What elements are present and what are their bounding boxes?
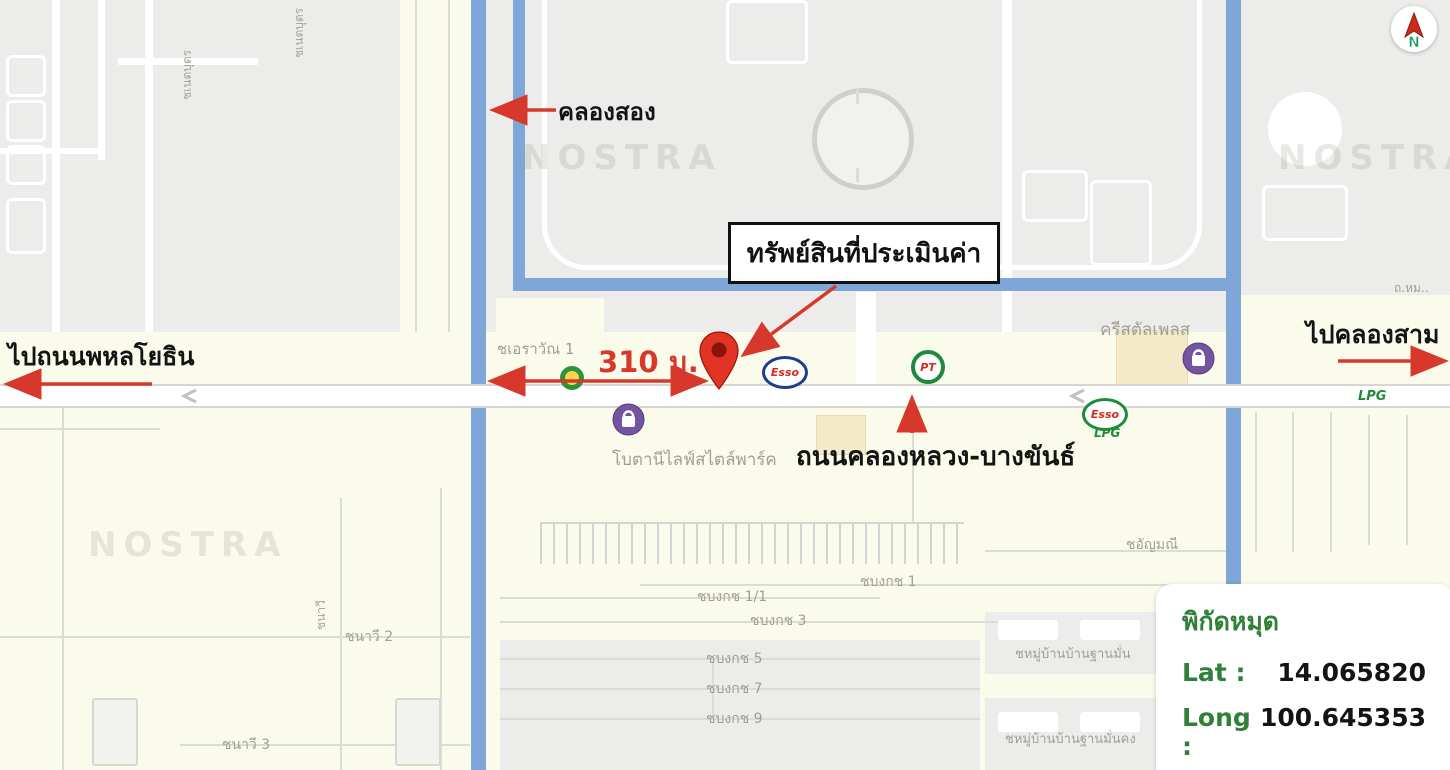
map-canvas: NOSTRA NOSTRA NOSTRA Esso PT Esso LPG ชเ…	[0, 0, 1450, 770]
street-line	[500, 597, 880, 599]
street-label: ชบงกช 1/1	[697, 586, 767, 608]
watermark: NOSTRA	[522, 138, 722, 178]
street-line	[98, 0, 105, 160]
roundabout	[812, 88, 914, 190]
lat-value: 14.065820	[1277, 658, 1426, 687]
building	[395, 698, 441, 766]
street-label-vertical: ชเนตบุตร	[178, 50, 197, 100]
compass-icon: N	[1391, 6, 1437, 52]
street-line	[856, 292, 876, 386]
street-line	[62, 405, 64, 770]
main-road-label: ถนนคลองหลวง-บางขันธ์	[796, 436, 1075, 477]
building	[92, 698, 138, 766]
townhouse-row	[540, 522, 964, 564]
street-label: ชอัญมณี	[1126, 534, 1178, 556]
street-line	[415, 0, 417, 332]
property-callout-box: ทรัพย์สินที่ประเมินค่า	[728, 222, 1000, 284]
coordinates-card: พิกัดหมุด Lat : 14.065820 Long : 100.645…	[1156, 584, 1450, 770]
street-label: ชบงกช 7	[706, 678, 763, 700]
street-label: ชบงกช 1	[860, 571, 917, 593]
building-outline	[6, 55, 46, 97]
building-outline	[726, 0, 808, 64]
distance-label: 310 ม.	[598, 339, 699, 385]
shopping-bag-icon	[1182, 342, 1215, 375]
street-label: ถ.หม..	[1394, 279, 1429, 298]
street-label: ชนาวี 2	[345, 626, 393, 648]
street-line	[448, 0, 450, 332]
longitude-row: Long : 100.645353	[1182, 703, 1426, 761]
building-outline	[1090, 180, 1152, 266]
street-line	[0, 636, 470, 638]
compass-north-letter: N	[1408, 35, 1420, 51]
street-line	[1255, 412, 1257, 552]
lpg-label: LPG	[1094, 426, 1120, 440]
street-label: ชเอราวัณ 1	[497, 337, 574, 361]
street-line	[145, 0, 153, 332]
coordinates-title: พิกัดหมุด	[1182, 602, 1426, 642]
property-callout-text: ทรัพย์สินที่ประเมินค่า	[747, 233, 981, 274]
canal-label: คลองสอง	[558, 92, 656, 131]
building-outline	[1022, 170, 1088, 222]
green-marker-icon	[560, 366, 584, 390]
latitude-row: Lat : 14.065820	[1182, 658, 1426, 687]
district-block	[0, 0, 400, 332]
long-label: Long :	[1182, 703, 1260, 761]
street-label: ชบงกช 9	[706, 708, 763, 730]
place-label: ครีสตัลเพลส	[1100, 316, 1190, 343]
esso-icon: Esso	[762, 356, 808, 389]
roundabout-tick	[856, 168, 859, 182]
property-pin-icon	[698, 331, 740, 391]
place-label: โบตานีไลฟ์สไตล์พาร์ค	[612, 446, 777, 473]
building-outline	[1080, 620, 1140, 640]
street-line	[340, 498, 342, 770]
street-label: ชหมู่บ้านบ้านฐานมั่น	[1015, 643, 1131, 664]
watermark: NOSTRA	[1278, 138, 1450, 178]
building-outline	[6, 100, 46, 142]
street-line	[52, 0, 60, 332]
street-line	[1406, 415, 1408, 545]
shopping-bag-icon	[612, 403, 645, 436]
to-phahonyothin-label: ไปถนนพหลโยธิน	[8, 337, 194, 377]
street-label: ชบงกช 3	[750, 610, 807, 632]
lpg-area-label: LPG	[1358, 389, 1386, 404]
street-label: ชบงกช 5	[706, 648, 763, 670]
street-line	[0, 428, 160, 430]
roundabout-tick	[856, 88, 859, 104]
watermark: NOSTRA	[88, 525, 288, 565]
building-outline	[998, 620, 1058, 640]
street-line	[1330, 412, 1332, 552]
street-label-vertical: ชนาวี	[312, 600, 331, 630]
building-outline	[6, 198, 46, 254]
building-outline	[1262, 185, 1348, 241]
street-label-vertical: ชเนตบุตร	[290, 8, 309, 58]
building-outline	[6, 145, 46, 185]
street-line	[1292, 412, 1294, 552]
to-khlong-sam-label: ไปคลองสาม	[1306, 315, 1439, 355]
lat-label: Lat :	[1182, 658, 1245, 687]
street-label: ชนาวี 3	[222, 734, 270, 756]
street-label: ชหมู่บ้านบ้านฐานมั่นคง	[1005, 728, 1136, 749]
long-value: 100.645353	[1260, 703, 1426, 732]
pt-station-icon: PT	[911, 350, 945, 384]
street-line	[985, 550, 1235, 552]
street-line	[1368, 415, 1370, 545]
